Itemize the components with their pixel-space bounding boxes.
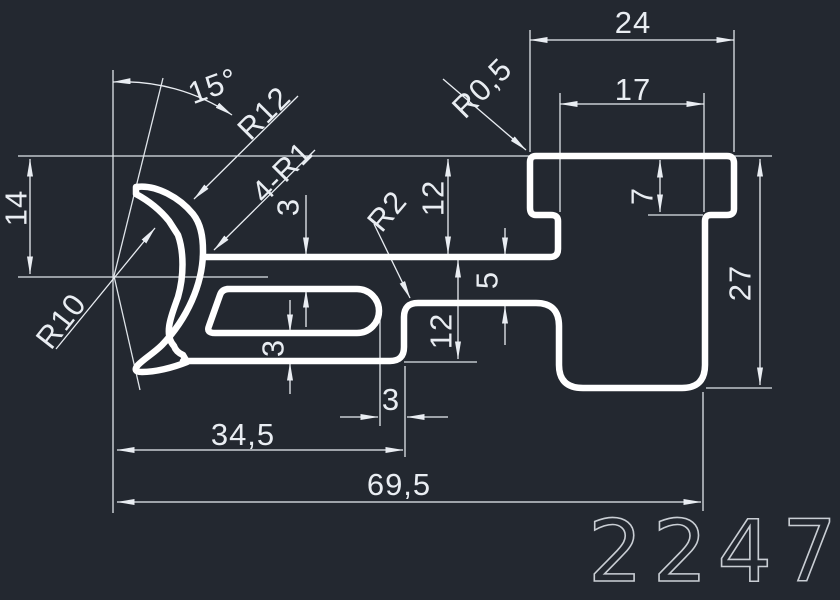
angle-15-label: 15° <box>184 61 243 111</box>
dim-5-label: 5 <box>470 271 505 289</box>
extension-lines <box>18 30 772 513</box>
angle-ray-15 <box>114 78 163 276</box>
dimension-lines <box>30 40 760 502</box>
claw-profile <box>136 187 203 372</box>
part-number: 2247 <box>588 502 840 600</box>
dim-24-label: 24 <box>615 5 651 40</box>
leader-r2 <box>374 224 410 298</box>
dim-34-5-label: 34,5 <box>211 417 275 452</box>
dim-17-label: 17 <box>615 72 651 107</box>
cad-drawing-canvas: 14 15° R12 4-R1 3 R2 12 5 12 R0,5 24 17 … <box>0 0 840 600</box>
dim-3-step-label: 3 <box>382 382 400 417</box>
radius-r10-label: R10 <box>29 287 93 356</box>
dim-7-label: 7 <box>625 187 660 205</box>
dim-69-5-label: 69,5 <box>367 467 431 502</box>
dim-14-label: 14 <box>0 190 34 226</box>
thickness-3-bottom-label: 3 <box>256 339 291 357</box>
radius-r2-label: R2 <box>360 184 414 238</box>
dim-12-upper-label: 12 <box>416 180 451 216</box>
slot-cutout <box>208 289 379 333</box>
thickness-3-top-label: 3 <box>271 198 306 216</box>
radius-r0-5-label: R0,5 <box>445 51 519 125</box>
dim-27-label: 27 <box>723 265 758 301</box>
dim-12-lower-label: 12 <box>424 313 459 349</box>
cad-viewport: 14 15° R12 4-R1 3 R2 12 5 12 R0,5 24 17 … <box>0 0 840 600</box>
